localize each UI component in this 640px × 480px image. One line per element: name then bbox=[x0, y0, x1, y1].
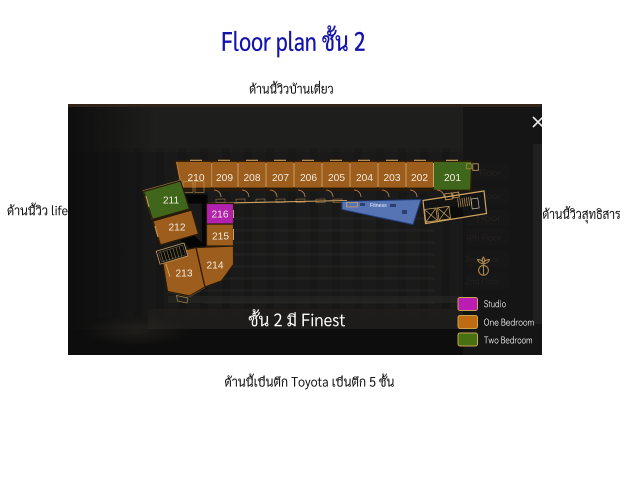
svg-text:209: 209 bbox=[216, 173, 233, 184]
svg-text:215: 215 bbox=[212, 232, 229, 243]
svg-text:202: 202 bbox=[411, 173, 428, 184]
svg-text:210: 210 bbox=[188, 173, 205, 184]
svg-text:214: 214 bbox=[207, 261, 224, 272]
svg-text:213: 213 bbox=[176, 269, 193, 280]
svg-text:205: 205 bbox=[328, 173, 345, 184]
svg-text:212: 212 bbox=[169, 223, 186, 234]
svg-text:216: 216 bbox=[212, 210, 229, 221]
svg-text:206: 206 bbox=[300, 173, 317, 184]
svg-text:201: 201 bbox=[444, 173, 461, 184]
svg-text:207: 207 bbox=[272, 173, 289, 184]
svg-text:204: 204 bbox=[356, 173, 373, 184]
svg-text:211: 211 bbox=[163, 196, 180, 207]
svg-text:Fitness: Fitness bbox=[370, 203, 387, 209]
svg-text:203: 203 bbox=[384, 173, 401, 184]
svg-text:208: 208 bbox=[244, 173, 261, 184]
